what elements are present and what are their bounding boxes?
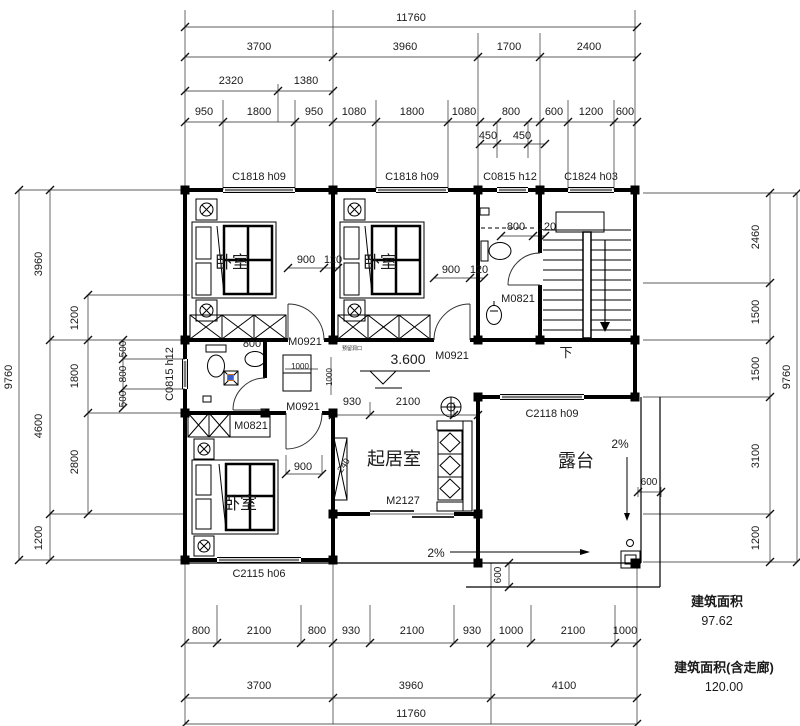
- dim-text: 9760: [781, 365, 793, 389]
- dim-text: 2400: [577, 41, 601, 53]
- dim-text: 1380: [294, 75, 318, 87]
- dim-text: 600: [545, 106, 563, 118]
- dim-text: 2460: [750, 225, 762, 249]
- dim-text: 1000: [291, 362, 309, 371]
- dim-text: 1000: [499, 625, 523, 637]
- dim-text: 240: [335, 456, 352, 474]
- dim-text: 3960: [393, 41, 417, 53]
- sofa-back: [463, 421, 472, 511]
- dim-text: 3700: [247, 680, 271, 692]
- dim-text: 450: [513, 130, 531, 142]
- toilet-tank: [481, 241, 488, 261]
- level-symbol: [360, 371, 430, 384]
- dim-text: 9760: [3, 365, 15, 389]
- dim-text: 2100: [247, 625, 271, 637]
- room-bedroom-3: 卧室: [223, 494, 257, 513]
- dim-text: 600: [616, 106, 634, 118]
- door-label: M0821: [501, 293, 535, 305]
- building-area-corridor-note: 建筑面积(含走廊) 120.00: [648, 659, 800, 696]
- dim-text: 2100: [561, 625, 585, 637]
- window-label: C2118 h09: [525, 408, 578, 420]
- shaft-note: 预留洞口: [342, 345, 362, 352]
- dim-text: 1080: [452, 106, 476, 118]
- dim-text: 600: [641, 477, 658, 488]
- window-label: C1824 h03: [564, 171, 618, 183]
- dim-text: 120: [538, 221, 556, 233]
- dim-text: 450: [479, 130, 497, 142]
- dim-text: 1800: [69, 364, 81, 388]
- dim-text: 3100: [750, 444, 762, 468]
- window-label: C2115 h06: [232, 568, 285, 580]
- doors: [233, 253, 540, 517]
- building-area-note: 建筑面积 97.62: [657, 593, 777, 630]
- dim-text: 930: [343, 396, 361, 408]
- dim-text: 500: [118, 340, 129, 357]
- dim-text: 800: [118, 365, 129, 382]
- door-label: M2127: [386, 495, 420, 507]
- dim-text: 4600: [33, 414, 45, 438]
- dim-text: 1500: [750, 300, 762, 324]
- dim-text: 1200: [69, 306, 81, 330]
- window-label: C1818 h09: [385, 171, 439, 183]
- drain-circle-icon: [627, 540, 634, 547]
- door-label: M0921: [286, 401, 320, 413]
- dim-text: 1200: [750, 526, 762, 550]
- basin-icon: [245, 352, 265, 367]
- dim-text: 800: [192, 625, 210, 637]
- door-label: M0921: [288, 336, 322, 348]
- dim-text: 1000: [325, 368, 334, 386]
- dim-text: 900: [294, 461, 312, 473]
- dim-text: 2100: [400, 625, 424, 637]
- dim-text: 4100: [552, 680, 576, 692]
- slope-label: 2%: [611, 437, 629, 451]
- building-area-corridor-value: 120.00: [648, 678, 800, 696]
- window-label: C0815 h12: [164, 347, 176, 401]
- dim-text: 1000: [613, 625, 637, 637]
- drain-icon: [203, 396, 211, 402]
- building-area-label: 建筑面积: [657, 593, 777, 612]
- room-bedroom-1: 卧室: [215, 253, 249, 272]
- dim-text: 2100: [396, 396, 420, 408]
- toilet-icon: [208, 355, 225, 377]
- dim-text: 1200: [33, 526, 45, 550]
- dim-text: 1200: [579, 106, 603, 118]
- dim-text: 3700: [247, 41, 271, 53]
- dim-text: 120: [470, 264, 488, 276]
- toilet-tank: [206, 345, 226, 352]
- staircase: [543, 212, 631, 338]
- dim-text: 800: [507, 221, 525, 233]
- window-label: C1818 h09: [232, 171, 286, 183]
- toilet-icon: [489, 243, 511, 260]
- dim-text: 930: [342, 625, 360, 637]
- dim-top-total: 11760: [396, 12, 426, 24]
- dim-text: 1800: [247, 106, 271, 118]
- shower-icon: [480, 208, 489, 215]
- shaft: [283, 355, 311, 391]
- room-bedroom-2: 卧室: [363, 253, 397, 272]
- slope-label: 2%: [427, 546, 445, 560]
- dim-bottom-total: 11760: [396, 708, 426, 720]
- dim-text: 900: [297, 254, 315, 266]
- dim-text: 1700: [497, 41, 521, 53]
- level-mark: 3.600: [390, 351, 425, 367]
- room-terrace: 露台: [558, 451, 594, 471]
- door-label: M0821: [234, 420, 268, 432]
- floor-plan-canvas: 1176037003960170024002320138095018009501…: [0, 0, 800, 726]
- dim-text: 3960: [33, 252, 45, 276]
- basin-icon: [487, 306, 502, 325]
- dim-text: 2800: [69, 450, 81, 474]
- dim-text: 1800: [400, 106, 424, 118]
- dim-text: 500: [118, 390, 129, 407]
- dim-text: 950: [195, 106, 213, 118]
- dim-text: 2320: [219, 75, 243, 87]
- dim-text: 800: [308, 625, 326, 637]
- dim-text: 1080: [342, 106, 366, 118]
- room-living: 起居室: [367, 449, 421, 469]
- dim-text: 1500: [750, 357, 762, 381]
- building-area-value: 97.62: [657, 612, 777, 630]
- stair-down-label: 下: [559, 345, 572, 360]
- bathroom-left-fixtures: [203, 345, 265, 402]
- window-label: C0815 h12: [483, 171, 537, 183]
- door-label: M0921: [435, 350, 469, 362]
- dim-text: 800: [243, 338, 261, 350]
- dim-text: 950: [305, 106, 323, 118]
- dim-text: 120: [324, 254, 342, 266]
- dim-text: 900: [442, 264, 460, 276]
- dim-text: 3960: [399, 680, 423, 692]
- dim-text: 930: [463, 625, 481, 637]
- dim-text: 800: [502, 106, 520, 118]
- dim-text: 600: [493, 566, 504, 583]
- building-area-corridor-label: 建筑面积(含走廊): [648, 659, 800, 678]
